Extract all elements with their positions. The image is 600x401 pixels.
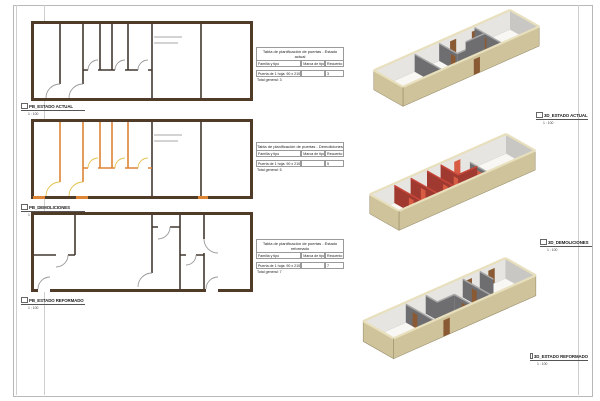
schedule-col-header: Familia y tipo xyxy=(256,253,301,259)
view-title-label: PB_DEMOLICIONES xyxy=(29,205,70,210)
view-title-label: 3D_DEMOLICIONES xyxy=(548,240,588,245)
schedule-cell-family: Puerta de 1 hoja: 90 x 210 cm xyxy=(256,160,301,167)
plan-viewport-demoliciones[interactable] xyxy=(30,118,254,200)
3d-view-estado-actual-drawing xyxy=(366,4,546,126)
3d-viewport-estado-actual[interactable] xyxy=(366,4,546,131)
plan-viewport-estado-actual[interactable] xyxy=(30,20,254,102)
view-title-pb-estado-reformado: PB_ESTADO REFORMADO 1 : 100 xyxy=(21,297,85,310)
door-schedule-demoliciones[interactable]: Tabla de planificación de puertas - Demo… xyxy=(256,142,344,172)
schedule-col-header: Marca de tipo xyxy=(301,61,325,67)
view-number-icon xyxy=(530,353,533,359)
view-title-3d-estado-reformado: 3D_ESTADO REFORMADO 1 : 100 xyxy=(530,353,588,366)
schedule-cell-mark xyxy=(301,262,325,269)
view-number-icon xyxy=(536,112,543,118)
schedule-cell-mark xyxy=(301,70,325,77)
schedule-col-header: Familia y tipo xyxy=(256,151,301,157)
schedule-total: Total general: 7 xyxy=(256,270,344,274)
view-scale: 1 : 100 xyxy=(547,248,592,252)
schedule-col-header: Familia y tipo xyxy=(256,61,301,67)
sheet-margin-line-right xyxy=(578,5,579,395)
view-title-label: 3D_ESTADO ACTUAL xyxy=(544,113,588,118)
view-scale: 1 : 100 xyxy=(543,121,588,125)
schedule-total: Total general: 3 xyxy=(256,78,344,82)
view-title-label: 3D_ESTADO REFORMADO xyxy=(534,354,588,359)
3d-view-demoliciones-drawing xyxy=(362,128,542,250)
door-schedule-estado-reformado[interactable]: Tabla de planificación de puertas - Esta… xyxy=(256,239,344,274)
plan-viewport-estado-reformado[interactable] xyxy=(30,211,254,293)
view-title-label: PB_ESTADO ACTUAL xyxy=(29,104,73,109)
view-number-icon xyxy=(21,103,28,109)
view-number-icon xyxy=(21,297,28,303)
schedule-row: Puerta de 1 hoja: 90 x 210 cm 7 xyxy=(256,262,344,269)
view-number-icon xyxy=(540,239,547,245)
sheet-margin-line-left xyxy=(16,5,17,395)
schedule-cell-count: 7 xyxy=(325,262,344,269)
view-scale: 1 : 100 xyxy=(537,362,588,366)
view-scale: 1 : 100 xyxy=(28,306,85,310)
floor-plan-estado-actual-drawing xyxy=(30,20,254,102)
schedule-title: Tabla de planificación de puertas - Demo… xyxy=(256,142,344,151)
schedule-col-header: Recuento xyxy=(325,61,344,67)
view-scale: 1 : 100 xyxy=(28,112,85,116)
schedule-cell-family: Puerta de 1 hoja: 90 x 210 cm xyxy=(256,70,301,77)
schedule-cell-count: 5 xyxy=(325,160,344,167)
schedule-row: Puerta de 1 hoja: 90 x 210 cm 3 xyxy=(256,70,344,77)
view-title-label: PB_ESTADO REFORMADO xyxy=(29,298,84,303)
schedule-cell-family: Puerta de 1 hoja: 90 x 210 cm xyxy=(256,262,301,269)
schedule-col-header: Recuento xyxy=(325,253,344,259)
schedule-cell-count: 3 xyxy=(325,70,344,77)
door-schedule-estado-actual[interactable]: Tabla de planificación de puertas - Esta… xyxy=(256,47,344,82)
schedule-cell-mark xyxy=(301,160,325,167)
3d-viewport-estado-reformado[interactable] xyxy=(355,252,543,384)
view-title-3d-demoliciones: 3D_DEMOLICIONES 1 : 100 xyxy=(540,239,592,252)
schedule-col-header: Marca de tipo xyxy=(301,253,325,259)
3d-viewport-demoliciones[interactable] xyxy=(362,128,542,255)
schedule-col-header: Marca de tipo xyxy=(301,151,325,157)
schedule-total: Total general: 5 xyxy=(256,168,344,172)
view-number-icon xyxy=(21,204,28,210)
schedule-col-header: Recuento xyxy=(325,151,344,157)
schedule-title: Tabla de planificación de puertas - Esta… xyxy=(256,47,344,61)
schedule-title: Tabla de planificación de puertas - Esta… xyxy=(256,239,344,253)
view-title-3d-estado-actual: 3D_ESTADO ACTUAL 1 : 100 xyxy=(536,112,588,125)
3d-view-estado-reformado-drawing xyxy=(355,252,543,379)
view-title-pb-estado-actual: PB_ESTADO ACTUAL 1 : 100 xyxy=(21,103,85,116)
drawing-sheet: { "sheet": { "type": "architectural-shee… xyxy=(0,0,600,401)
schedule-row: Puerta de 1 hoja: 90 x 210 cm 5 xyxy=(256,160,344,167)
floor-plan-demoliciones-drawing xyxy=(30,118,254,200)
floor-plan-estado-reformado-drawing xyxy=(30,211,254,293)
